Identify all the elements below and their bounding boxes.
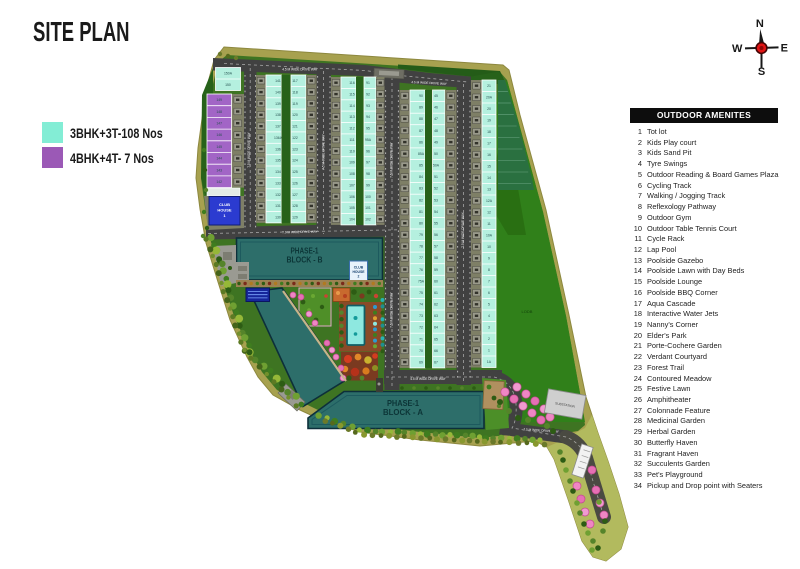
svg-text:85A: 85A bbox=[418, 152, 425, 156]
svg-text:142: 142 bbox=[216, 180, 222, 184]
svg-text:CLUB: CLUB bbox=[354, 266, 364, 270]
svg-text:107: 107 bbox=[349, 183, 355, 187]
svg-text:9: 9 bbox=[488, 257, 490, 261]
svg-text:95A: 95A bbox=[365, 138, 372, 142]
svg-text:80: 80 bbox=[419, 222, 423, 226]
svg-text:150A: 150A bbox=[224, 72, 233, 76]
svg-text:4: 4 bbox=[488, 314, 490, 318]
svg-text:5: 5 bbox=[488, 303, 490, 307]
svg-text:12A: 12A bbox=[486, 199, 493, 203]
svg-text:47: 47 bbox=[434, 117, 438, 121]
svg-text:84: 84 bbox=[419, 175, 423, 179]
svg-text:98: 98 bbox=[366, 172, 370, 176]
svg-text:136: 136 bbox=[275, 147, 281, 151]
svg-text:144: 144 bbox=[216, 157, 222, 161]
svg-text:120: 120 bbox=[292, 113, 298, 117]
svg-text:7.5 M WIDE DRIVE WAY: 7.5 M WIDE DRIVE WAY bbox=[461, 211, 465, 247]
svg-text:13: 13 bbox=[487, 188, 491, 192]
svg-text:101: 101 bbox=[365, 206, 371, 210]
svg-text:88: 88 bbox=[419, 117, 423, 121]
svg-text:114: 114 bbox=[349, 104, 355, 108]
svg-text:64: 64 bbox=[434, 326, 438, 330]
svg-text:126: 126 bbox=[292, 181, 298, 185]
svg-text:62: 62 bbox=[434, 303, 438, 307]
svg-text:82: 82 bbox=[419, 198, 423, 202]
svg-text:118: 118 bbox=[292, 90, 298, 94]
svg-text:15: 15 bbox=[487, 165, 491, 169]
svg-text:18: 18 bbox=[487, 130, 491, 134]
svg-text:57: 57 bbox=[434, 245, 438, 249]
svg-text:148: 148 bbox=[216, 110, 222, 114]
svg-text:CLUB: CLUB bbox=[219, 202, 230, 207]
svg-text:11: 11 bbox=[487, 222, 491, 226]
svg-text:14: 14 bbox=[487, 176, 491, 180]
svg-text:73: 73 bbox=[419, 314, 423, 318]
svg-text:4.5 M WIDE DRIVE WAY: 4.5 M WIDE DRIVE WAY bbox=[282, 68, 318, 72]
svg-text:HOUSE: HOUSE bbox=[217, 208, 232, 213]
svg-text:94: 94 bbox=[366, 115, 370, 119]
svg-text:3: 3 bbox=[488, 326, 490, 330]
svg-text:109: 109 bbox=[349, 161, 355, 165]
svg-text:128: 128 bbox=[292, 204, 298, 208]
svg-text:81: 81 bbox=[419, 210, 423, 214]
svg-text:91: 91 bbox=[366, 81, 370, 85]
svg-text:119: 119 bbox=[292, 102, 298, 106]
svg-text:7.5 M WIDE DRIVE WAY: 7.5 M WIDE DRIVE WAY bbox=[390, 291, 394, 327]
svg-text:138: 138 bbox=[275, 113, 281, 117]
svg-text:19: 19 bbox=[487, 119, 491, 123]
svg-text:89: 89 bbox=[419, 106, 423, 110]
svg-text:111: 111 bbox=[349, 138, 354, 142]
svg-text:7.5 M WIDE DRIVE WAY: 7.5 M WIDE DRIVE WAY bbox=[390, 141, 394, 177]
svg-text:16: 16 bbox=[487, 153, 491, 157]
svg-text:147: 147 bbox=[216, 122, 222, 126]
svg-text:S: S bbox=[758, 66, 765, 78]
svg-text:86: 86 bbox=[419, 140, 423, 144]
svg-text:LODB: LODB bbox=[522, 309, 533, 314]
svg-text:102: 102 bbox=[365, 218, 371, 222]
svg-text:100: 100 bbox=[365, 195, 371, 199]
svg-text:2: 2 bbox=[488, 337, 490, 341]
svg-text:7.5 M WIDE DRIVE WAY: 7.5 M WIDE DRIVE WAY bbox=[322, 133, 326, 169]
svg-text:60: 60 bbox=[434, 279, 438, 283]
svg-text:149: 149 bbox=[216, 98, 222, 102]
svg-text:135: 135 bbox=[275, 159, 281, 163]
svg-text:87: 87 bbox=[419, 129, 423, 133]
svg-text:10A: 10A bbox=[486, 234, 493, 238]
svg-text:51: 51 bbox=[434, 175, 438, 179]
svg-text:108: 108 bbox=[349, 172, 355, 176]
svg-text:54: 54 bbox=[434, 210, 438, 214]
svg-text:93: 93 bbox=[366, 104, 370, 108]
svg-text:45: 45 bbox=[434, 94, 438, 98]
svg-text:113: 113 bbox=[349, 115, 355, 119]
svg-text:2: 2 bbox=[358, 275, 360, 279]
svg-text:21: 21 bbox=[487, 84, 491, 88]
svg-text:69: 69 bbox=[419, 360, 423, 364]
svg-text:127: 127 bbox=[292, 193, 298, 197]
svg-text:7: 7 bbox=[488, 280, 490, 284]
svg-text:6: 6 bbox=[488, 291, 490, 295]
svg-text:1: 1 bbox=[488, 349, 490, 353]
svg-text:1A: 1A bbox=[487, 360, 492, 364]
svg-text:92: 92 bbox=[366, 92, 370, 96]
svg-text:75: 75 bbox=[419, 291, 423, 295]
svg-text:99: 99 bbox=[366, 183, 370, 187]
svg-text:63: 63 bbox=[434, 314, 438, 318]
svg-text:76: 76 bbox=[419, 268, 423, 272]
svg-text:117: 117 bbox=[292, 79, 298, 83]
svg-text:83: 83 bbox=[419, 187, 423, 191]
svg-text:122: 122 bbox=[292, 136, 298, 140]
svg-text:E: E bbox=[781, 42, 788, 54]
svg-text:77: 77 bbox=[419, 256, 423, 260]
svg-text:BLOCK - B: BLOCK - B bbox=[287, 256, 323, 265]
svg-text:141: 141 bbox=[275, 79, 281, 83]
svg-text:121: 121 bbox=[292, 125, 298, 129]
svg-text:46: 46 bbox=[434, 106, 438, 110]
svg-text:90: 90 bbox=[419, 94, 423, 98]
svg-text:20A: 20A bbox=[486, 96, 493, 100]
svg-text:115: 115 bbox=[349, 92, 355, 96]
svg-text:133: 133 bbox=[275, 181, 281, 185]
svg-text:4.5 M WIDE DRIVE WAY: 4.5 M WIDE DRIVE WAY bbox=[410, 377, 446, 381]
svg-text:78: 78 bbox=[419, 245, 423, 249]
svg-text:143: 143 bbox=[216, 168, 222, 172]
svg-text:65: 65 bbox=[434, 337, 438, 341]
svg-text:49: 49 bbox=[434, 140, 438, 144]
svg-text:123: 123 bbox=[292, 147, 298, 151]
svg-text:HOUSE: HOUSE bbox=[352, 270, 365, 274]
svg-text:53: 53 bbox=[434, 198, 438, 202]
svg-text:139: 139 bbox=[275, 102, 281, 106]
svg-text:96: 96 bbox=[366, 149, 370, 153]
svg-text:125: 125 bbox=[292, 170, 298, 174]
svg-text:67: 67 bbox=[434, 360, 438, 364]
svg-text:BLOCK - A: BLOCK - A bbox=[383, 407, 423, 417]
svg-text:132: 132 bbox=[275, 193, 281, 197]
svg-text:52: 52 bbox=[434, 187, 438, 191]
svg-text:110: 110 bbox=[349, 149, 355, 153]
svg-text:131: 131 bbox=[275, 204, 281, 208]
svg-text:104: 104 bbox=[349, 218, 355, 222]
svg-text:150: 150 bbox=[225, 83, 231, 87]
svg-text:20: 20 bbox=[487, 107, 491, 111]
svg-text:50A: 50A bbox=[433, 164, 440, 168]
svg-text:75A: 75A bbox=[418, 279, 425, 283]
svg-text:137: 137 bbox=[275, 125, 281, 129]
svg-text:72: 72 bbox=[419, 326, 423, 330]
svg-text:17: 17 bbox=[487, 142, 491, 146]
svg-text:129: 129 bbox=[292, 216, 298, 220]
svg-text:74: 74 bbox=[419, 303, 423, 307]
svg-text:95: 95 bbox=[366, 127, 370, 131]
svg-text:12: 12 bbox=[487, 211, 491, 215]
svg-text:56: 56 bbox=[434, 233, 438, 237]
svg-text:116: 116 bbox=[349, 81, 355, 85]
svg-text:130: 130 bbox=[275, 216, 281, 220]
svg-text:105: 105 bbox=[349, 206, 355, 210]
svg-text:66: 66 bbox=[434, 349, 438, 353]
svg-text:58: 58 bbox=[434, 256, 438, 260]
svg-text:8: 8 bbox=[488, 268, 490, 272]
svg-text:145: 145 bbox=[216, 145, 222, 149]
svg-text:48: 48 bbox=[434, 129, 438, 133]
svg-text:134: 134 bbox=[275, 170, 281, 174]
svg-text:71: 71 bbox=[419, 337, 423, 341]
svg-text:85: 85 bbox=[419, 164, 423, 168]
svg-text:79: 79 bbox=[419, 233, 423, 237]
svg-text:70: 70 bbox=[419, 349, 423, 353]
svg-text:N: N bbox=[756, 18, 764, 30]
svg-text:97: 97 bbox=[366, 161, 370, 165]
svg-text:146: 146 bbox=[216, 133, 222, 137]
svg-text:10: 10 bbox=[487, 245, 491, 249]
svg-text:124: 124 bbox=[292, 159, 298, 163]
svg-text:136A: 136A bbox=[274, 136, 283, 140]
svg-text:106: 106 bbox=[349, 195, 355, 199]
svg-text:55: 55 bbox=[434, 222, 438, 226]
svg-text:7.5 M WIDE DRIVE WAY: 7.5 M WIDE DRIVE WAY bbox=[247, 131, 251, 167]
svg-text:W: W bbox=[732, 43, 743, 55]
svg-text:50: 50 bbox=[434, 152, 438, 156]
svg-text:140: 140 bbox=[275, 90, 281, 94]
svg-text:112: 112 bbox=[349, 127, 355, 131]
svg-text:61: 61 bbox=[434, 291, 438, 295]
svg-text:PHASE-1: PHASE-1 bbox=[291, 247, 319, 256]
svg-text:59: 59 bbox=[434, 268, 438, 272]
